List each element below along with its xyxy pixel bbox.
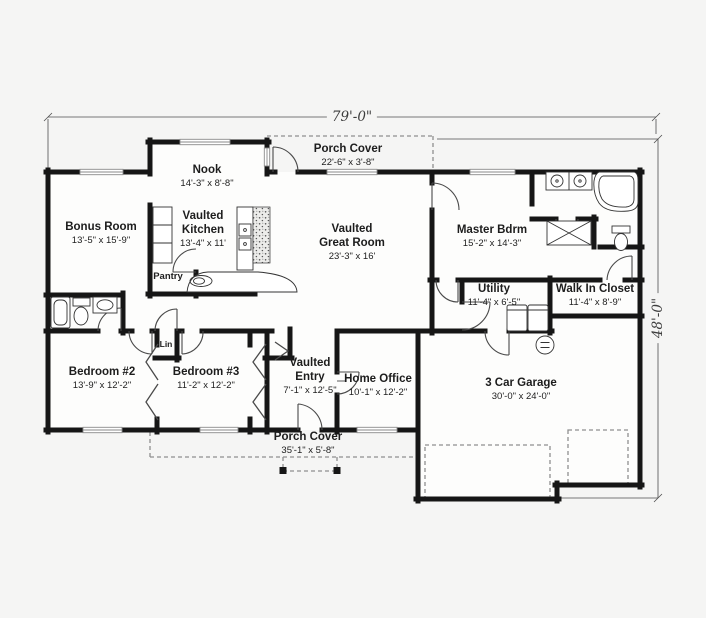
floor-plan-drawing (0, 0, 706, 618)
dryer (528, 305, 548, 331)
porch-post (280, 467, 287, 474)
toilet-bowl (74, 307, 88, 325)
toilet-bowl (615, 234, 628, 251)
toilet-tank (612, 226, 630, 233)
garage-features (536, 336, 554, 354)
floor-drain-symbol (536, 336, 554, 354)
kitchen-counter-hatch (253, 207, 270, 263)
toilet-tank (73, 298, 90, 306)
washer (507, 305, 527, 331)
floor-plan: Nook14'-3" x 8'-8"Porch Cover22'-6" x 3'… (0, 0, 706, 618)
porch-post (334, 467, 341, 474)
